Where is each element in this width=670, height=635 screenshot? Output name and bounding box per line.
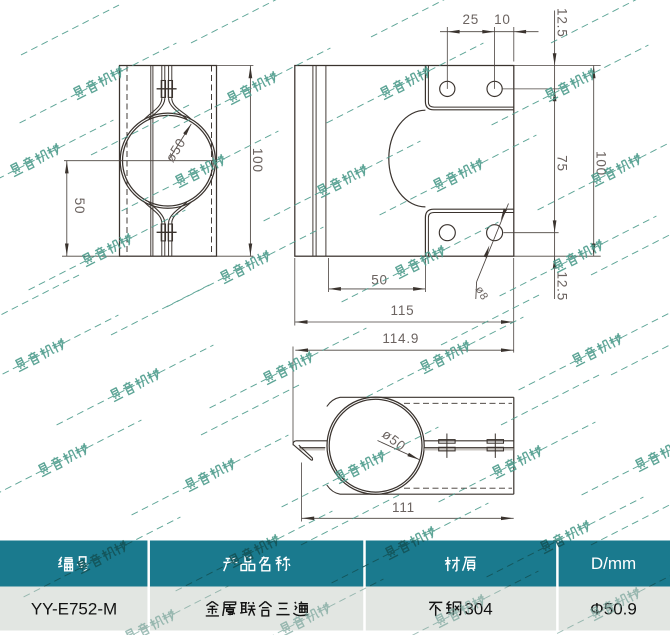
svg-text:10: 10 [494, 12, 511, 27]
svg-text:D/mm: D/mm [591, 554, 636, 573]
svg-text:115: 115 [391, 303, 415, 318]
svg-text:12.5: 12.5 [554, 8, 569, 37]
svg-text:114.9: 114.9 [382, 331, 419, 346]
svg-text:ø8: ø8 [473, 284, 491, 303]
svg-text:100: 100 [250, 148, 265, 173]
svg-text:12.5: 12.5 [554, 272, 569, 301]
svg-text:25: 25 [462, 12, 479, 27]
svg-text:75: 75 [555, 155, 570, 172]
svg-text:ø50: ø50 [379, 426, 408, 454]
svg-text:111: 111 [392, 500, 415, 515]
svg-text:YY-E752-M: YY-E752-M [31, 599, 117, 618]
svg-text:50: 50 [72, 198, 87, 215]
